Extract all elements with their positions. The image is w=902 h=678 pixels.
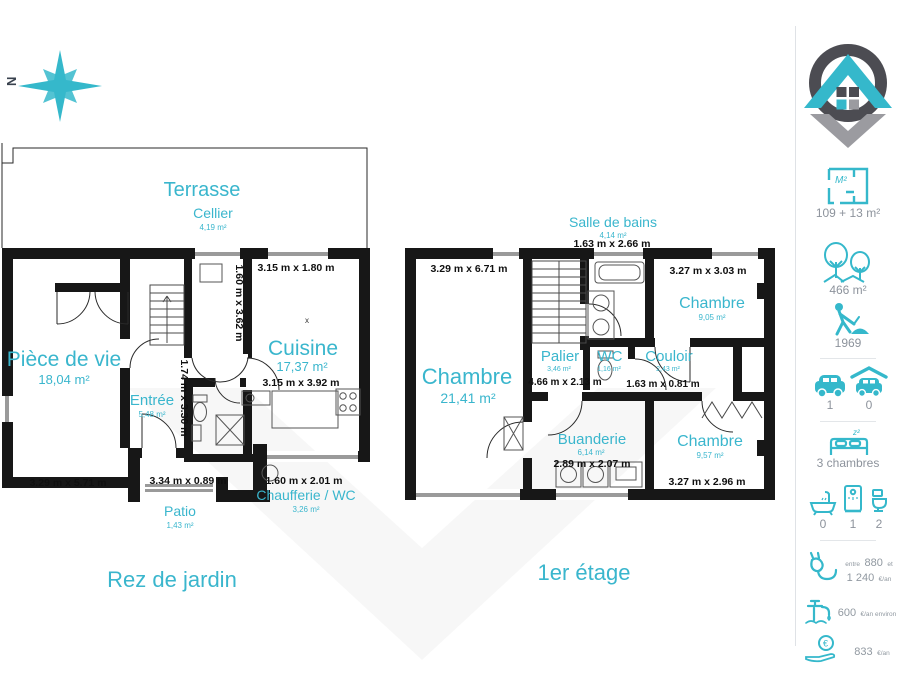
terrasse-label: Terrasse xyxy=(164,179,241,201)
cuisine-mark: x xyxy=(305,316,309,325)
couloir-label: Couloir xyxy=(645,348,693,365)
dim-top-right: 3.15 m x 1.80 m xyxy=(257,262,334,274)
patio-dim: 3.34 m x 0.89 m xyxy=(149,475,226,487)
patio-area: 1,43 m² xyxy=(166,521,193,530)
energy-low: 880 xyxy=(865,557,883,569)
palier-label: Palier xyxy=(541,348,579,365)
parking-garage-count: 0 xyxy=(849,398,889,412)
water-tap-icon xyxy=(804,596,840,624)
piece-de-vie-dim: 3.29 m x 5.71 m xyxy=(29,477,106,489)
cellier-label: Cellier xyxy=(193,205,233,221)
chambre-3-area: 9,57 m² xyxy=(696,451,723,460)
land-area-value: 466 m² xyxy=(796,283,900,297)
tax-value: 833 xyxy=(854,646,872,658)
divider xyxy=(820,421,876,422)
energy-prefix: entre xyxy=(845,561,860,568)
chambre-1-dim: 3.29 m x 6.71 m xyxy=(430,263,507,275)
shower-count: 1 xyxy=(842,517,864,531)
bedrooms-value: 3 chambres xyxy=(796,456,900,470)
wc-area: 1,16 m² xyxy=(597,366,621,373)
floor-plans-canvas: N xyxy=(0,0,902,678)
trees-icon xyxy=(822,240,874,286)
stairs-first xyxy=(532,261,586,343)
water-value: 600 xyxy=(838,607,856,619)
entree-label: Entrée xyxy=(130,392,174,409)
palier-dim: 4.66 m x 2.13 m xyxy=(528,377,601,388)
water-cost: 600 €/an environ xyxy=(836,606,898,621)
toilet-count: 2 xyxy=(868,517,890,531)
floorplan-icon: M² xyxy=(826,166,870,206)
piece-de-vie-area: 18,04 m² xyxy=(38,372,90,387)
chambre-2-dim: 3.27 m x 3.03 m xyxy=(669,265,746,277)
bathtub-count: 0 xyxy=(806,517,840,531)
buanderie-label: Buanderie xyxy=(558,431,626,448)
chambre-1-label: Chambre xyxy=(422,364,512,389)
cuisine-label: Cuisine xyxy=(268,337,338,360)
bed-icon: z² xyxy=(826,426,872,458)
water-unit: €/an environ xyxy=(861,611,897,618)
toilet-icon xyxy=(869,488,889,516)
svg-text:M²: M² xyxy=(835,175,847,186)
coin-hand-icon: € xyxy=(803,634,839,664)
buanderie-area: 6,14 m² xyxy=(577,448,604,457)
chaufferie-label: Chaufferie / WC xyxy=(256,487,355,503)
couloir-dim: 1.63 m x 0.81 m xyxy=(626,379,699,390)
stairs-ground xyxy=(150,285,184,345)
ground-title: Rez de jardin xyxy=(107,567,237,592)
salle-de-bains-label: Salle de bains xyxy=(569,214,657,230)
palier-area: 3,46 m² xyxy=(547,366,571,373)
garage-icon xyxy=(850,366,888,400)
piece-de-vie-label: Pièce de vie xyxy=(7,348,121,371)
divider xyxy=(820,540,876,541)
bathtub-icon xyxy=(808,486,838,516)
energy-conj: et xyxy=(887,561,892,568)
car-icon xyxy=(813,372,847,400)
energy-high: 1 240 xyxy=(847,572,875,584)
year-built-value: 1969 xyxy=(796,336,900,350)
chambre-2-label: Chambre xyxy=(679,295,745,312)
divider xyxy=(820,358,876,359)
entree-area: 5,48 m² xyxy=(138,410,165,419)
construction-worker-icon xyxy=(824,300,870,340)
electric-plug-icon xyxy=(806,551,840,585)
compass-north-label: N xyxy=(4,77,19,86)
salle-de-bains-dim: 1.63 m x 2.66 m xyxy=(573,238,650,250)
chambre-1-area: 21,41 m² xyxy=(440,390,496,406)
energy-unit: €/an xyxy=(879,576,892,583)
svg-text:€: € xyxy=(823,639,828,649)
dim-entree-vertical: 1.74 m x 3.30 m xyxy=(178,359,190,436)
dim-cellier-vertical: 1.60 m x 3.62 m xyxy=(233,264,245,341)
energy-cost: entre 880 et 1 240 €/an xyxy=(840,556,898,586)
cuisine-area: 17,37 m² xyxy=(276,359,328,374)
compass-icon: N xyxy=(4,50,102,122)
couloir-area: 2,43 m² xyxy=(656,366,680,373)
chambre-2-area: 9,05 m² xyxy=(698,313,725,322)
chambre-3-label: Chambre xyxy=(677,433,743,450)
first-title: 1er étage xyxy=(538,560,631,585)
agency-logo xyxy=(802,30,894,150)
wc-label: WC xyxy=(598,348,623,365)
chaufferie-area: 3,26 m² xyxy=(292,505,319,514)
living-area-value: 109 + 13 m² xyxy=(796,206,900,220)
chaufferie-dim: 1.60 m x 2.01 m xyxy=(265,475,342,487)
parking-car-count: 1 xyxy=(810,398,850,412)
cellier-area: 4,19 m² xyxy=(199,223,226,232)
tax-unit: €/an xyxy=(877,650,890,657)
tax-cost: 833 €/an xyxy=(846,645,898,660)
chambre-3-dim: 3.27 m x 2.96 m xyxy=(668,476,745,488)
svg-text:z²: z² xyxy=(852,428,860,437)
patio-label: Patio xyxy=(164,503,196,519)
floor-plan-page: N xyxy=(0,0,902,678)
shower-icon xyxy=(842,484,864,514)
buanderie-dim: 2.89 m x 2.07 m xyxy=(553,458,630,470)
cuisine-dim: 3.15 m x 3.92 m xyxy=(262,377,339,389)
